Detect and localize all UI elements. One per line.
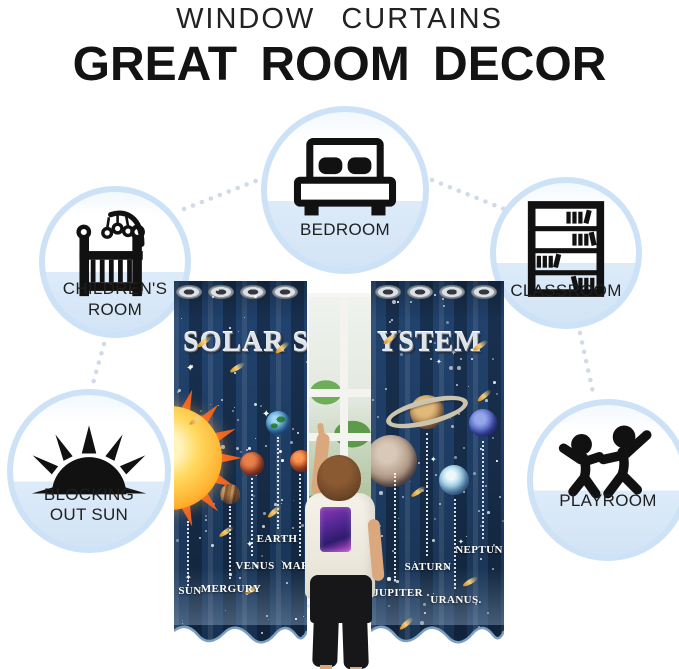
star <box>176 539 179 542</box>
star <box>287 294 290 297</box>
planet-label-neptune: NEPTUN <box>455 544 503 556</box>
planet-neptune <box>469 409 497 437</box>
planet-label-mars: MARS <box>282 560 307 572</box>
grommet <box>176 285 202 299</box>
star <box>410 301 412 303</box>
star <box>493 381 496 384</box>
planet-earth <box>266 411 290 435</box>
star <box>254 403 257 406</box>
curtain-hem-wave <box>174 619 307 653</box>
star <box>468 386 469 387</box>
star <box>456 384 458 386</box>
badge-label-line: CHILDREN'S <box>45 279 185 300</box>
star <box>391 319 393 321</box>
solar-system-print-title-right: YSTEM <box>377 327 482 359</box>
badge-bedroom: BEDROOM <box>261 106 429 274</box>
child-leg <box>312 617 339 668</box>
star <box>439 503 441 505</box>
star <box>303 616 304 617</box>
badge-label-blocking-out-sun: BLOCKING OUT SUN <box>13 485 165 526</box>
star <box>255 438 256 439</box>
star <box>234 372 236 374</box>
star <box>253 495 255 497</box>
window-muntin <box>309 389 379 397</box>
star <box>281 459 284 462</box>
sparkle-star: ✦ <box>430 456 437 464</box>
child-pants <box>310 575 372 623</box>
star <box>466 536 467 537</box>
star <box>397 301 399 303</box>
planet-label-saturn: SATURN <box>405 561 452 573</box>
star <box>442 298 444 300</box>
sparkle-star: ✦ <box>436 359 442 366</box>
star <box>456 291 458 293</box>
star <box>266 615 268 617</box>
star <box>502 520 504 522</box>
badge-label-playroom: PLAYROOM <box>533 491 679 512</box>
star <box>480 558 482 560</box>
badge-label-bedroom: BEDROOM <box>267 220 423 241</box>
star <box>217 289 219 291</box>
comet <box>229 361 246 374</box>
child-shirt-graphic <box>320 507 351 552</box>
star <box>377 416 379 418</box>
star <box>432 539 435 542</box>
planet-label-uranus: URANUS. <box>430 594 481 606</box>
headline-main: GREAT ROOM DECOR <box>0 37 679 92</box>
curtain-product-photo: SOLAR S SUN MERGURY VENUS EARTH MARS <box>174 281 504 669</box>
badge-label-line: BEDROOM <box>267 220 423 241</box>
badge-label-line: PLAYROOM <box>533 491 679 512</box>
star <box>410 481 411 482</box>
star <box>487 612 489 614</box>
star <box>499 496 501 498</box>
star <box>297 432 299 434</box>
grommet <box>272 285 298 299</box>
star <box>262 525 265 528</box>
star <box>286 582 288 584</box>
badge-label-childrens-room: CHILDREN'S ROOM <box>45 279 185 320</box>
star <box>435 474 437 476</box>
star <box>306 361 307 363</box>
star <box>396 580 399 583</box>
label-leader-line <box>482 441 484 539</box>
planet-venus <box>240 452 264 476</box>
badge-label-line: CLASSROOM <box>496 281 636 302</box>
star <box>485 399 488 402</box>
star <box>423 603 426 606</box>
star <box>244 317 245 318</box>
curtain-hem-wave <box>371 619 504 653</box>
star <box>279 450 282 453</box>
star <box>454 456 457 459</box>
label-leader-line <box>394 473 396 581</box>
planet-mars <box>290 450 307 472</box>
planet-label-sun: SUN <box>178 585 201 597</box>
planet-label-mercury: MERGURY <box>201 583 261 595</box>
label-leader-line <box>277 437 279 529</box>
label-leader-line <box>187 521 189 586</box>
badge-blocking-out-sun: BLOCKING OUT SUN <box>7 389 171 553</box>
grommet <box>439 285 465 299</box>
grommet <box>240 285 266 299</box>
label-leader-line <box>251 478 253 556</box>
star <box>434 518 436 520</box>
planet-label-jupiter: JUPITER <box>373 587 423 599</box>
star <box>389 321 391 323</box>
child-head <box>317 455 361 501</box>
star <box>446 321 449 324</box>
comet <box>462 575 479 588</box>
star <box>379 491 383 495</box>
planet-label-venus: VENUS <box>235 560 274 572</box>
star <box>248 447 251 450</box>
star <box>260 405 262 407</box>
grommet <box>471 285 497 299</box>
star <box>449 366 453 370</box>
star <box>451 425 454 428</box>
sparkle-star: ✦ <box>186 364 194 374</box>
star <box>392 300 396 304</box>
child-ankle <box>320 665 332 669</box>
star <box>398 518 399 519</box>
star <box>225 610 226 611</box>
star <box>388 605 390 607</box>
bed-icon <box>287 138 403 226</box>
comet <box>267 504 283 519</box>
star <box>292 428 294 430</box>
product-infographic: WINDOW CURTAINS GREAT ROOM DECOR BEDROOM <box>0 0 679 669</box>
star <box>211 544 214 547</box>
star <box>381 535 383 537</box>
child-leg <box>342 617 369 669</box>
planet-label-earth: EARTH <box>257 533 298 545</box>
star <box>301 524 304 527</box>
label-leader-line <box>426 433 428 556</box>
badge-label-line: ROOM <box>45 300 185 321</box>
curtain-panel-left: SOLAR S SUN MERGURY VENUS EARTH MARS <box>174 281 307 653</box>
star <box>485 485 487 487</box>
star <box>424 612 426 614</box>
star <box>261 555 263 557</box>
star <box>492 568 494 570</box>
planet-uranus <box>439 465 469 495</box>
grommet <box>407 285 433 299</box>
planet-mercury <box>220 484 240 504</box>
label-leader-line <box>299 474 301 556</box>
star <box>181 318 182 319</box>
star <box>492 358 494 360</box>
star <box>290 441 293 444</box>
star <box>443 305 445 307</box>
grommet <box>375 285 401 299</box>
label-leader-line <box>229 506 231 579</box>
star <box>239 577 241 579</box>
star <box>281 503 282 504</box>
badge-playroom: PLAYROOM <box>527 399 679 561</box>
star <box>372 399 374 401</box>
star <box>496 460 498 462</box>
badge-classroom: CLASSROOM <box>490 177 642 329</box>
star <box>487 511 490 514</box>
star <box>387 577 391 581</box>
star <box>265 445 267 447</box>
star <box>434 294 436 296</box>
star <box>450 418 451 419</box>
star <box>293 500 294 501</box>
badge-label-line: BLOCKING <box>13 485 165 506</box>
star <box>199 537 201 539</box>
star <box>480 288 482 290</box>
star <box>385 388 387 390</box>
star <box>473 472 476 475</box>
star <box>281 499 283 501</box>
curtain-panel-right: YSTEM JUPITER SATURN URANUS. NEPTUN <box>371 281 504 653</box>
star <box>457 366 461 370</box>
headline-top: WINDOW CURTAINS <box>0 3 679 36</box>
star <box>263 512 266 515</box>
star <box>427 594 429 596</box>
badge-label-classroom: CLASSROOM <box>496 281 636 302</box>
comet <box>410 485 427 499</box>
star <box>463 447 465 449</box>
star <box>496 393 498 395</box>
star <box>418 462 420 464</box>
star <box>402 496 404 498</box>
badge-label-line: OUT SUN <box>13 505 165 526</box>
star <box>292 527 294 529</box>
star <box>478 510 480 512</box>
star <box>492 437 494 439</box>
badge-childrens-room: CHILDREN'S ROOM <box>39 186 191 338</box>
